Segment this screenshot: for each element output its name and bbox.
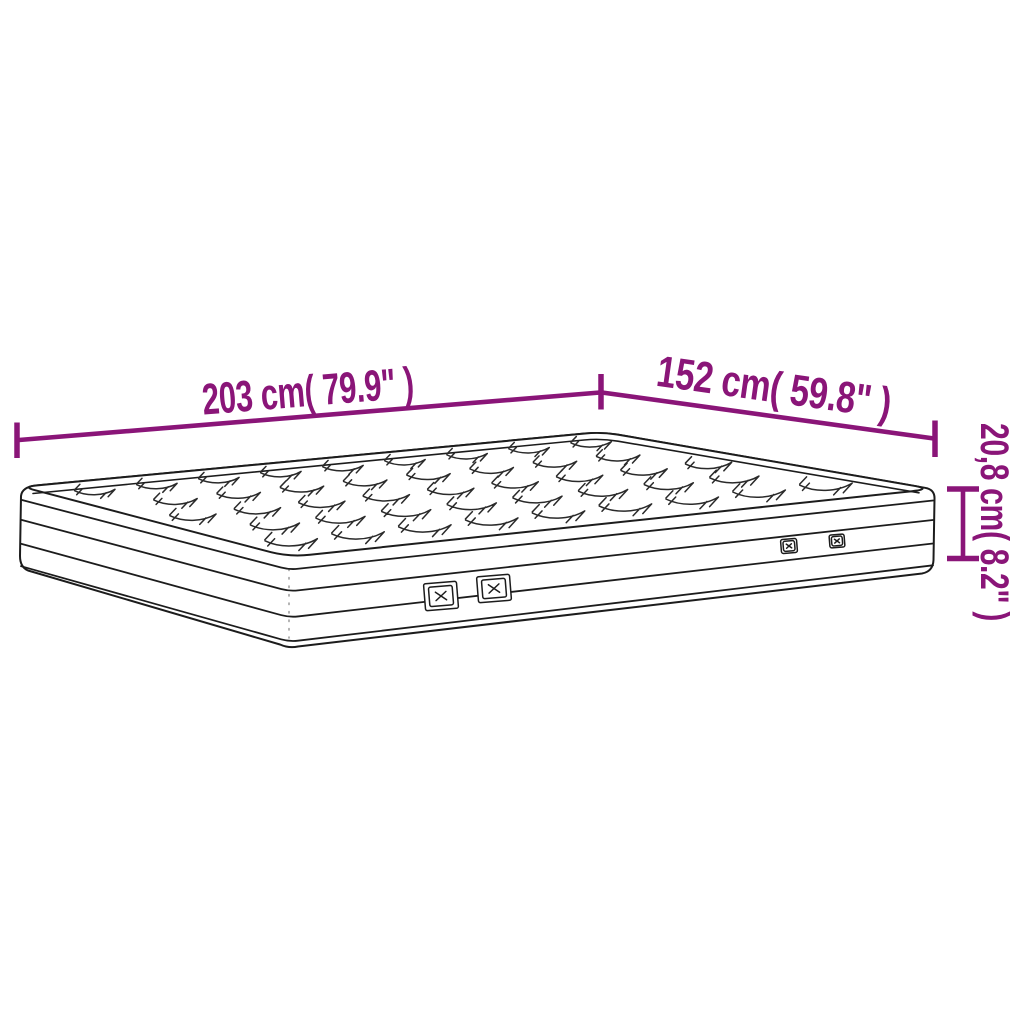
product-dimension-image: 203 cm( 79.9" ) 152 cm( 59.8" ) 20,8 cm(… xyxy=(0,0,1024,1024)
length-dimension-label: 203 cm( 79.9" ) xyxy=(200,358,415,424)
mattress-illustration xyxy=(20,433,935,647)
height-dimension: 20,8 cm( 8.2" ) xyxy=(947,423,1016,621)
height-dimension-label: 20,8 cm( 8.2" ) xyxy=(972,423,1016,621)
mattress-dimension-diagram: 203 cm( 79.9" ) 152 cm( 59.8" ) 20,8 cm(… xyxy=(0,0,1024,1024)
